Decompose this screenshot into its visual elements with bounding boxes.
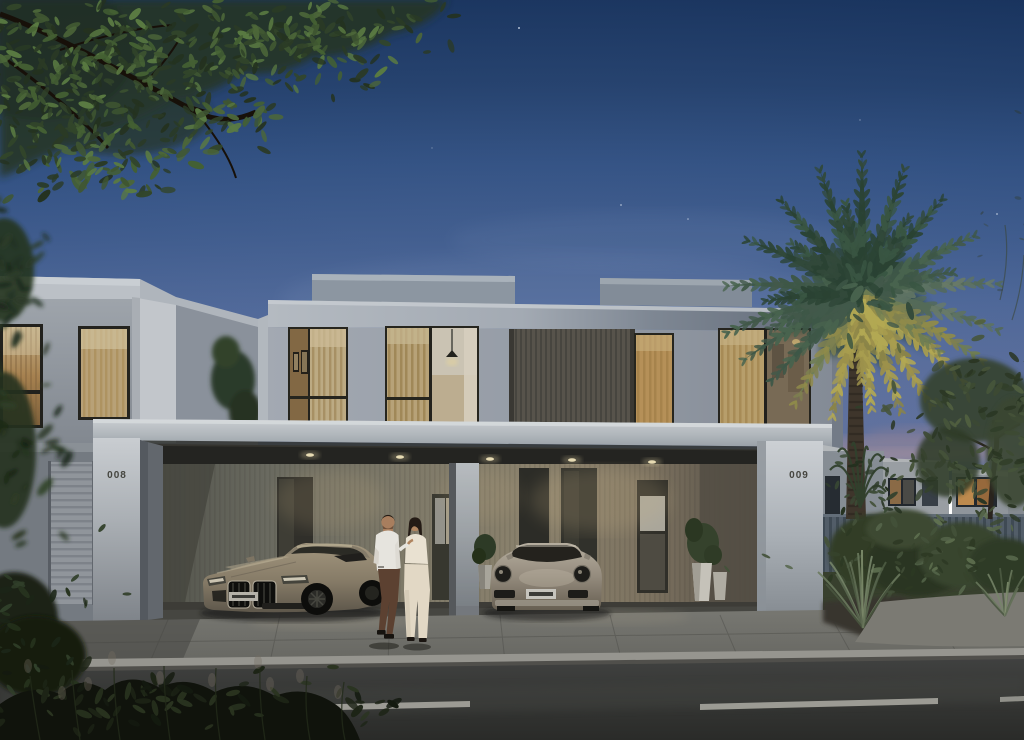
svg-text:009: 009 xyxy=(789,470,809,481)
svg-text:008: 008 xyxy=(107,470,127,481)
